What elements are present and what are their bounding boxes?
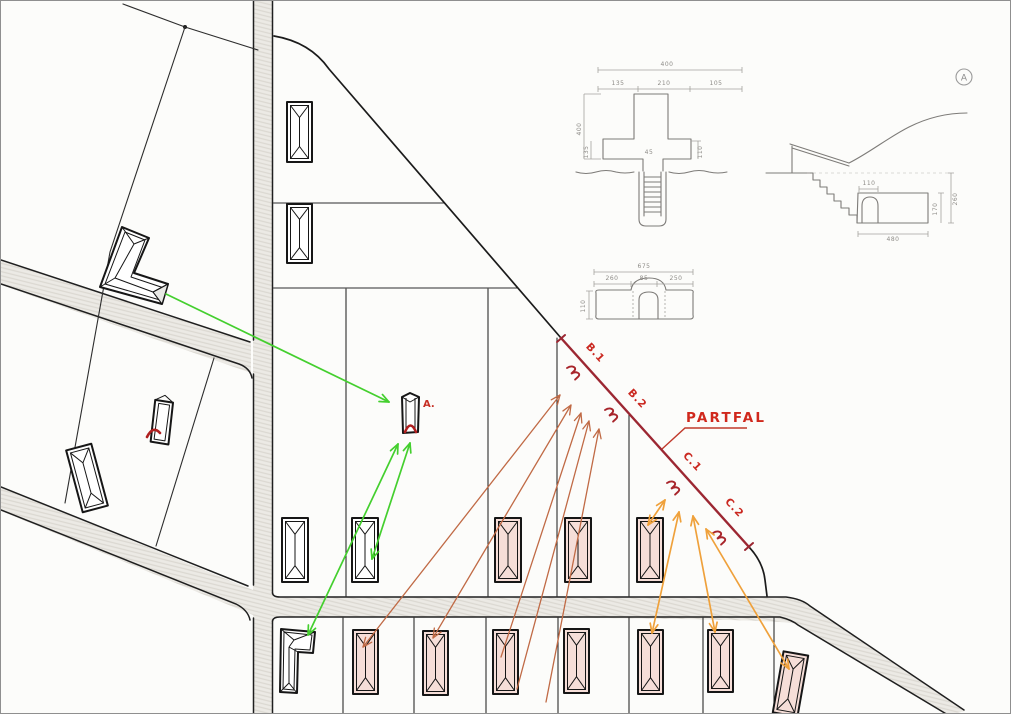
arch-building-small [145,393,176,444]
sheet-marker-letter: A [961,74,968,84]
boundary-line [274,36,561,338]
section-dim-arch: 110 [863,180,876,187]
facade-dim-mid: 85 [640,275,649,282]
facade-dim-left: 260 [606,275,619,282]
plan-dim-left: 135 [612,80,625,87]
roads [1,1,965,714]
plan-view-drawing: 400 135 210 105 400 135 110 45 [576,61,742,226]
plan-dim-height: 400 [576,123,583,136]
boundary-curve-south [749,547,767,596]
marker-label-b1: B.1 [583,341,607,366]
building-a: A. [402,393,435,433]
section-dim-inner: 170 [932,203,939,216]
plan-dim-total: 400 [661,61,674,68]
building [638,630,663,694]
building [423,631,448,695]
plan-dim-right: 105 [710,80,723,87]
circled-a-marker: A [956,69,972,85]
l-shaped-building [100,227,168,304]
partfal-label: PARTFAL [686,410,766,426]
marker-label-c2: C.2 [722,496,746,520]
building [565,518,591,582]
building [493,630,518,694]
marker-label-c1: C.1 [680,450,704,474]
section-dim-outer: 260 [952,193,959,206]
building [66,444,108,513]
facade-drawing: 675 260 85 250 110 [580,263,693,319]
building [564,629,589,693]
building [708,630,733,692]
hand-drawn-site-plan: 400 135 210 105 400 135 110 45 675 260 8… [1,1,1011,714]
partfal-leader [662,428,747,449]
marker-label-b2: B.2 [625,387,649,412]
facade-dim-total: 675 [638,263,651,270]
building [287,204,312,263]
facade-dim-right: 250 [670,275,683,282]
building [287,102,312,162]
building [773,651,808,714]
section-dim-bottom: 480 [887,236,900,243]
site-plan-page: 400 135 210 105 400 135 110 45 675 260 8… [0,0,1011,714]
plan-angle-note: 45 [645,149,654,156]
plan-dim-mid: 210 [658,80,671,87]
building-a-label: A. [423,399,435,410]
section-drawing: 260 170 480 110 [766,113,967,243]
facade-dim-height: 110 [580,300,587,313]
plan-dim-height-right: 110 [697,146,704,159]
plan-dim-height-lower: 135 [583,146,590,159]
building [282,518,308,582]
building [637,518,663,582]
f-shaped-building [280,629,315,693]
